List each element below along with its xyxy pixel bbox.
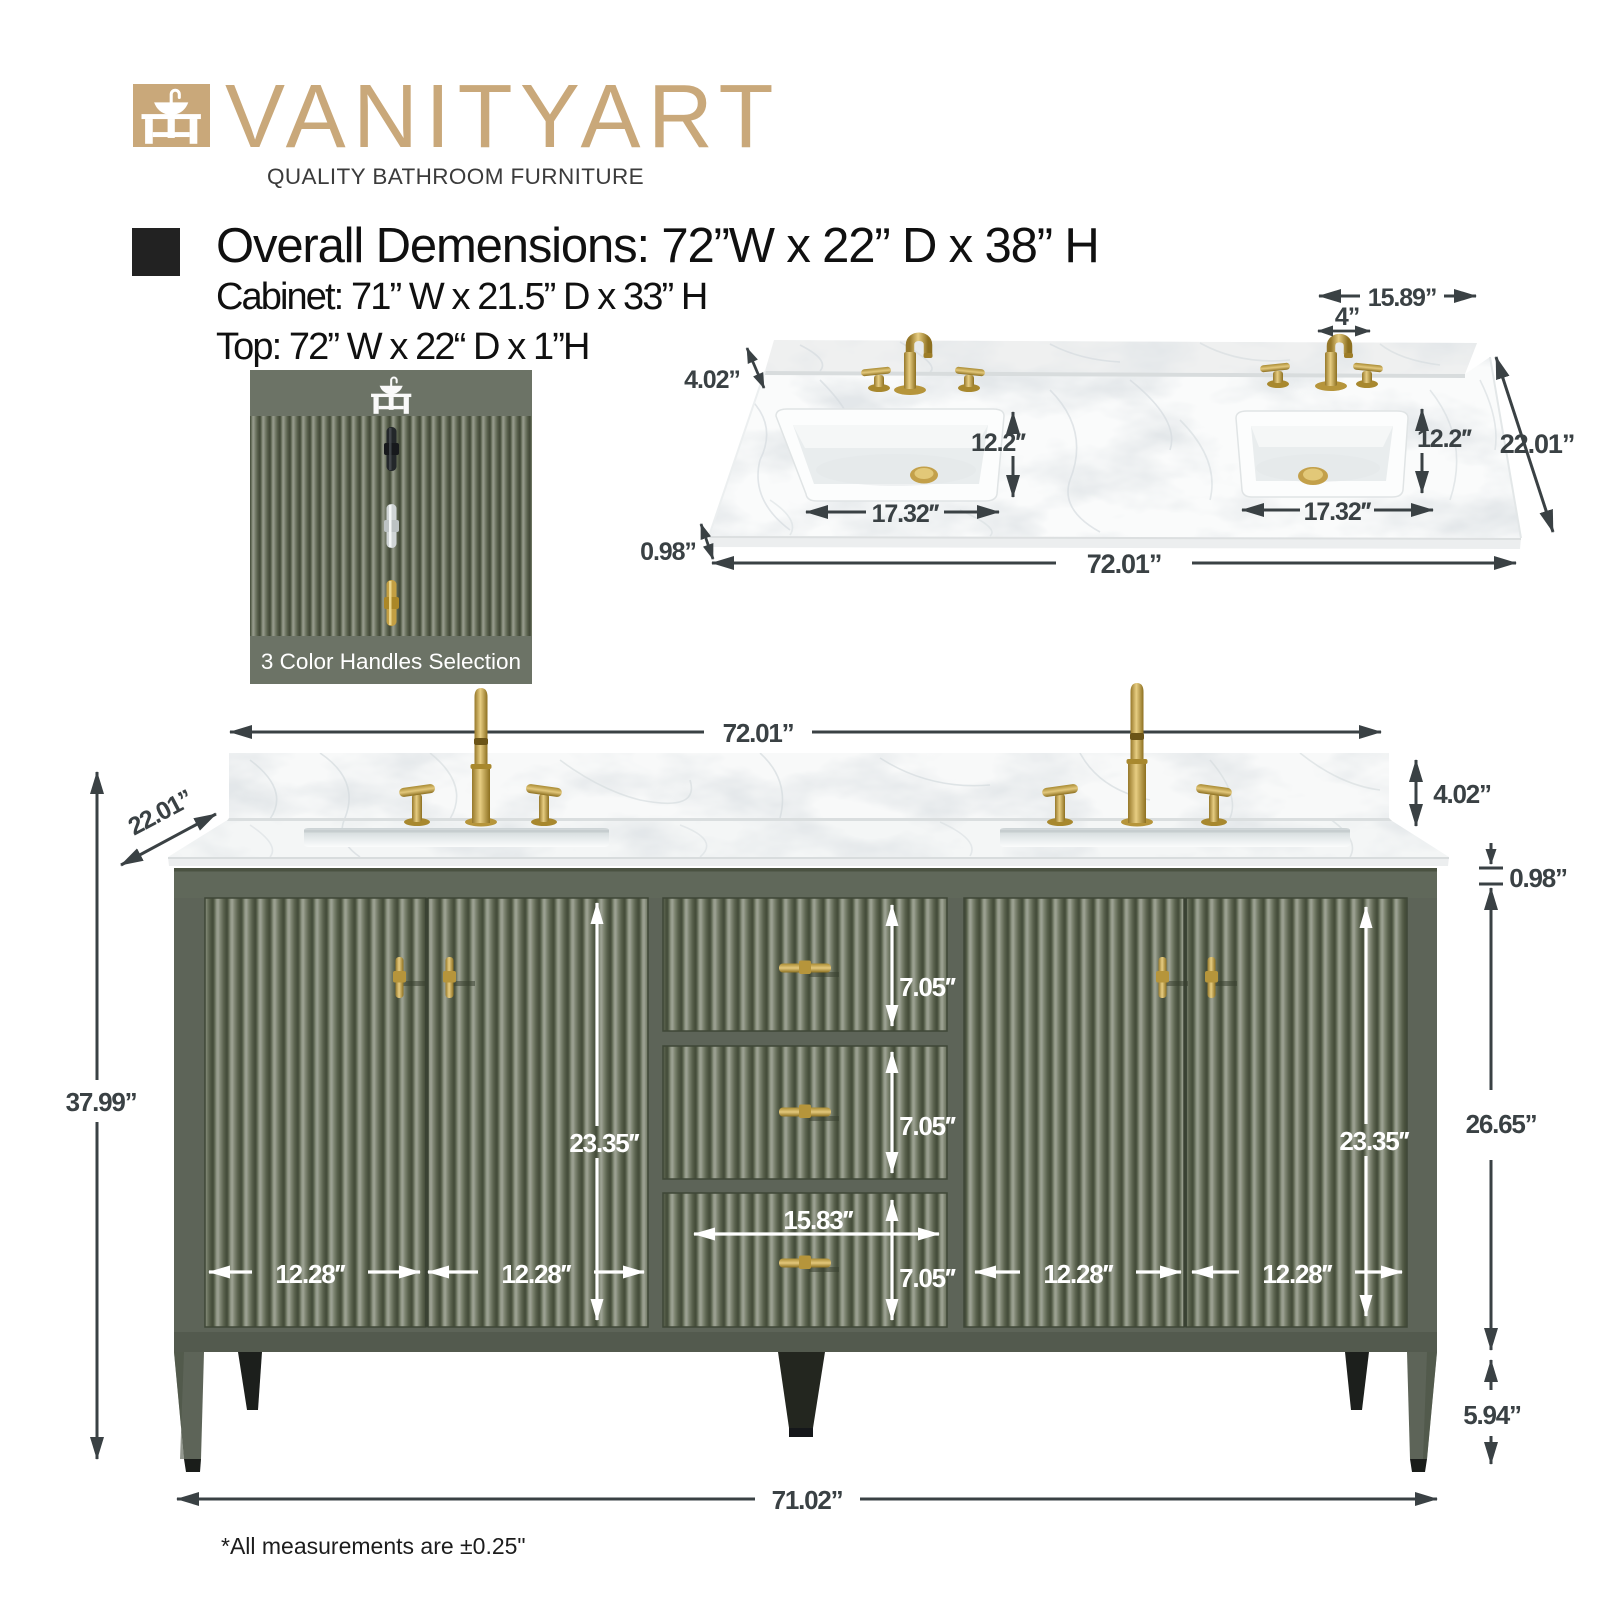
svg-text:7.05′′: 7.05′′ [899, 1111, 956, 1141]
svg-text:5.94”: 5.94” [1463, 1400, 1521, 1430]
svg-text:12.28′′: 12.28′′ [1262, 1259, 1332, 1289]
svg-text:37.99”: 37.99” [66, 1087, 137, 1117]
svg-text:12.28′′: 12.28′′ [275, 1259, 345, 1289]
svg-text:15.83′′: 15.83′′ [783, 1205, 853, 1235]
svg-text:12.28′′: 12.28′′ [501, 1259, 571, 1289]
svg-text:17.32′′: 17.32′′ [872, 500, 940, 528]
svg-text:23.35′′: 23.35′′ [569, 1128, 639, 1158]
svg-text:17.32′′: 17.32′′ [1304, 498, 1372, 526]
svg-text:7.05′′: 7.05′′ [899, 972, 956, 1002]
svg-text:12.2′′: 12.2′′ [971, 429, 1026, 457]
svg-text:0.98”: 0.98” [640, 538, 696, 566]
svg-text:72.01”: 72.01” [723, 718, 794, 748]
svg-text:72.01”: 72.01” [1087, 549, 1161, 579]
svg-text:4.02”: 4.02” [1433, 779, 1491, 809]
svg-text:0.98”: 0.98” [1509, 863, 1567, 893]
svg-text:12.28′′: 12.28′′ [1043, 1259, 1113, 1289]
svg-text:7.05′′: 7.05′′ [899, 1263, 956, 1293]
svg-text:22.01”: 22.01” [1500, 429, 1574, 459]
svg-text:3 Color Handles Selection: 3 Color Handles Selection [261, 649, 521, 674]
svg-text:71.02”: 71.02” [772, 1485, 843, 1515]
svg-text:15.89”: 15.89” [1368, 284, 1436, 312]
svg-text:4.02”: 4.02” [684, 366, 740, 394]
svg-text:22.01”: 22.01” [124, 785, 197, 842]
svg-text:23.35′′: 23.35′′ [1339, 1126, 1409, 1156]
svg-text:26.65”: 26.65” [1466, 1109, 1537, 1139]
svg-text:12.2′′: 12.2′′ [1417, 425, 1472, 453]
svg-text:4”: 4” [1335, 303, 1359, 331]
